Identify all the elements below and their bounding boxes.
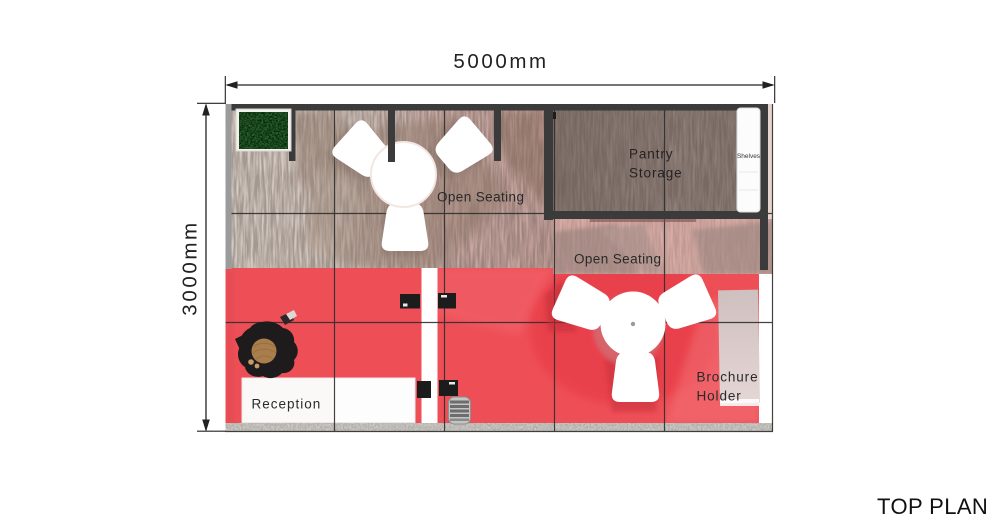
svg-text:Storage: Storage	[629, 166, 683, 181]
svg-text:Reception: Reception	[252, 397, 322, 412]
svg-text:Holder: Holder	[697, 389, 742, 404]
svg-text:Brochure: Brochure	[697, 370, 759, 385]
svg-text:TOP PLAN: TOP PLAN	[877, 494, 988, 519]
svg-text:Shelves: Shelves	[737, 153, 761, 160]
svg-text:Open Seating: Open Seating	[437, 190, 524, 205]
svg-text:3000mm: 3000mm	[179, 220, 202, 315]
svg-text:5000mm: 5000mm	[453, 50, 548, 73]
svg-text:Pantry: Pantry	[629, 147, 673, 162]
svg-text:Open Seating: Open Seating	[574, 252, 661, 267]
